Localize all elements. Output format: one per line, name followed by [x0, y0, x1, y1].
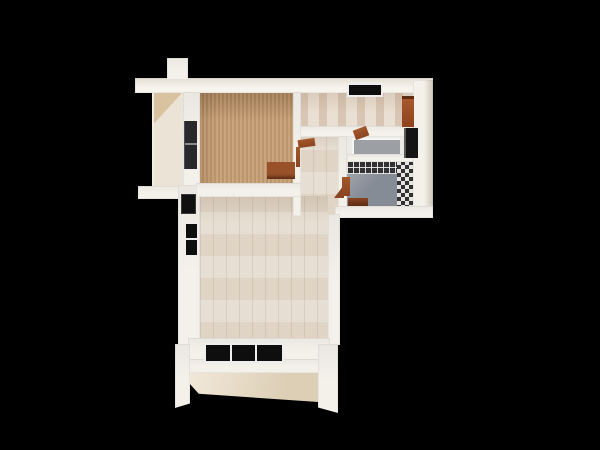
wall-bottom-strip-right	[318, 344, 338, 413]
bottom-window[interactable]	[204, 343, 284, 363]
top-window[interactable]	[347, 83, 383, 97]
side-window[interactable]	[185, 223, 198, 256]
window-mullion	[230, 345, 232, 361]
floorplan-canvas	[0, 0, 600, 450]
desk[interactable]	[267, 162, 295, 179]
kitchen-floor	[300, 92, 413, 127]
wall-top-notch	[167, 58, 188, 80]
kitchen-cabinet[interactable]	[402, 96, 414, 127]
balcony-niche-floor	[152, 92, 185, 187]
wall-living-right	[328, 214, 340, 345]
bathroom-fixture[interactable]	[342, 177, 350, 196]
wall-top	[135, 78, 433, 93]
entry-door-recess[interactable]	[181, 194, 196, 214]
window-mullion	[186, 238, 197, 240]
wc-shower-tray[interactable]	[352, 138, 400, 154]
wall-bottom-strip-left	[175, 344, 190, 408]
exterior-facade-face	[188, 370, 322, 404]
wall-bedroom-bottom	[196, 183, 301, 197]
living-room-floor	[200, 196, 328, 344]
bathroom-mosaic-wall-top	[347, 161, 399, 174]
hallway-door-jamb	[296, 147, 300, 167]
window-mullion	[255, 345, 257, 361]
wardrobe[interactable]	[184, 121, 197, 169]
bathroom-heater[interactable]	[348, 198, 368, 206]
wall-left-ledge	[138, 186, 182, 199]
dark-wall-panel	[404, 128, 418, 158]
wall-bathroom-bottom	[335, 206, 433, 218]
